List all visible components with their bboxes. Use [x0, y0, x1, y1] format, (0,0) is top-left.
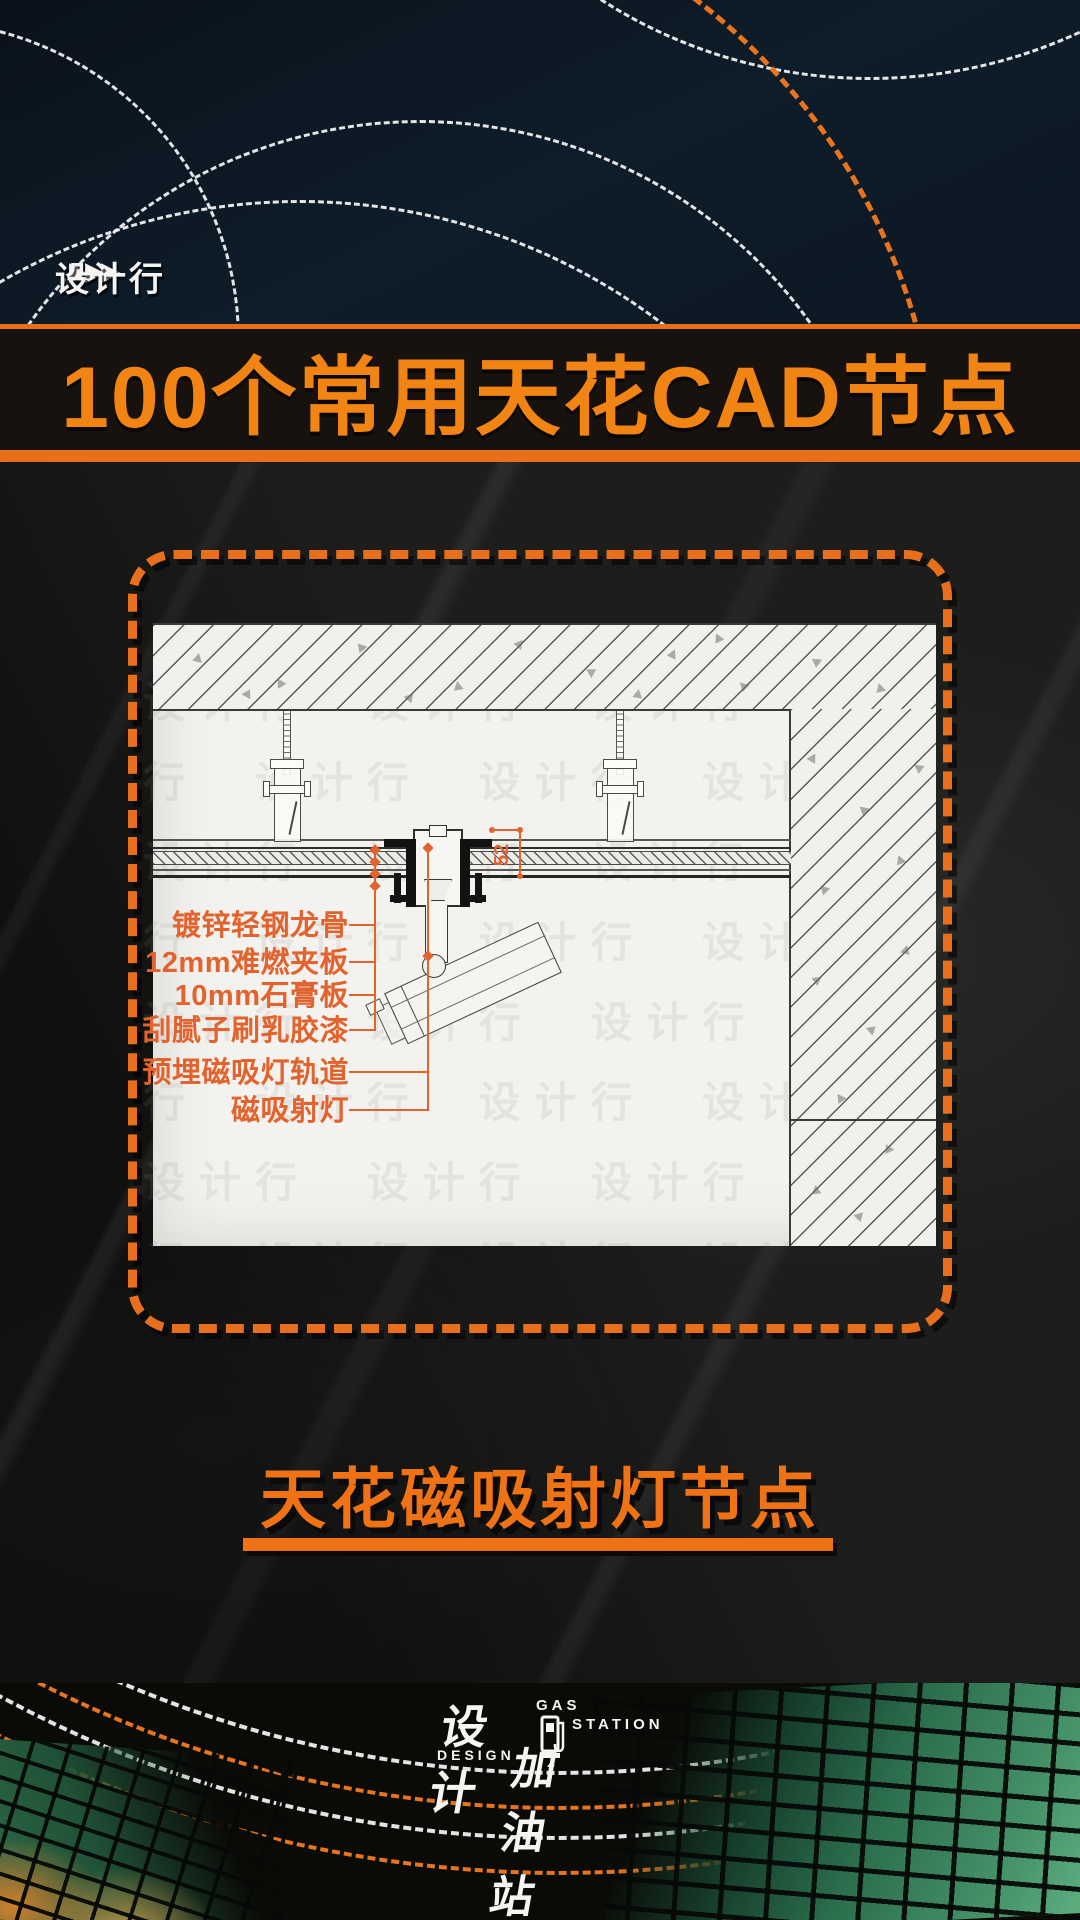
bolt-nut: [304, 781, 311, 797]
leader-stub: [349, 1029, 376, 1031]
caption-underline: [243, 1538, 833, 1551]
rod-nut: [270, 759, 304, 769]
leader-stub: [349, 1109, 429, 1111]
paint-finish-line: [153, 875, 791, 878]
label-plywood: 12mm难燃夹板: [131, 946, 349, 980]
label-magnet-spotlight: 磁吸射灯: [131, 1094, 349, 1128]
brand-row: 设计行 ▶▶▶: [55, 252, 555, 296]
label-putty-paint: 刮腻子刷乳胶漆: [131, 1014, 349, 1048]
edge-trim: [468, 895, 486, 902]
slab-bottom-line: [153, 709, 791, 711]
label-embedded-track: 预埋磁吸灯轨道: [131, 1056, 349, 1090]
plywood-layer: [153, 851, 791, 865]
mosaic-decor-left: [0, 1739, 294, 1920]
hanger-bolt: [268, 785, 306, 794]
page-title: 100个常用天花CAD节点: [0, 329, 1080, 450]
concrete-wall-hatch: [789, 709, 936, 1246]
mosaic-decor-right: [594, 1683, 1080, 1920]
track-top-slot: [429, 825, 447, 837]
furring-channel-line: [153, 847, 791, 849]
poster-page: 设计行 ▶▶▶ 100个常用天花CAD节点 设计行 设计行 设计行 设计行 设计…: [0, 0, 1080, 1920]
leader-stub: [349, 924, 376, 926]
bolt-nut: [263, 781, 270, 797]
dimension-dot: [517, 827, 523, 833]
rod-nut: [603, 759, 637, 769]
logo-en-gas: GAS: [536, 1697, 581, 1714]
dimension-dot: [517, 873, 523, 879]
title-banner: 100个常用天花CAD节点: [0, 324, 1080, 462]
leader-stub: [349, 961, 376, 963]
hanger-bolt: [601, 785, 639, 794]
gas-pump-icon: [540, 1713, 566, 1771]
brand-name: 设计行: [55, 252, 166, 301]
edge-trim: [390, 895, 408, 902]
label-steel-keel: 镀锌轻钢龙骨: [131, 909, 349, 943]
dimension-value: 52: [482, 842, 522, 868]
dimension-tick: [492, 829, 520, 831]
dimension-dot: [489, 827, 495, 833]
leader-stub: [349, 1071, 429, 1073]
cad-panel: 设计行 设计行 设计行 设计行 设计行 设计行 设计行 设计行 设计行 设计行 …: [153, 623, 936, 1246]
gypsum-line: [153, 869, 791, 871]
wall-joint-line: [789, 1119, 936, 1121]
caption-title: 天花磁吸射灯节点: [0, 1452, 1080, 1536]
label-gypsum-board: 10mm石膏板: [131, 979, 349, 1013]
logo-en-design: DESIGN: [437, 1747, 515, 1763]
bolt-nut: [596, 781, 603, 797]
bolt-nut: [637, 781, 644, 797]
concrete-slab-hatch: [153, 623, 936, 711]
leader-stub: [349, 994, 376, 996]
footer-band: 设计 GAS STATION DESIGN 加油站: [0, 1683, 1080, 1920]
logo-en-station: STATION: [572, 1716, 664, 1733]
